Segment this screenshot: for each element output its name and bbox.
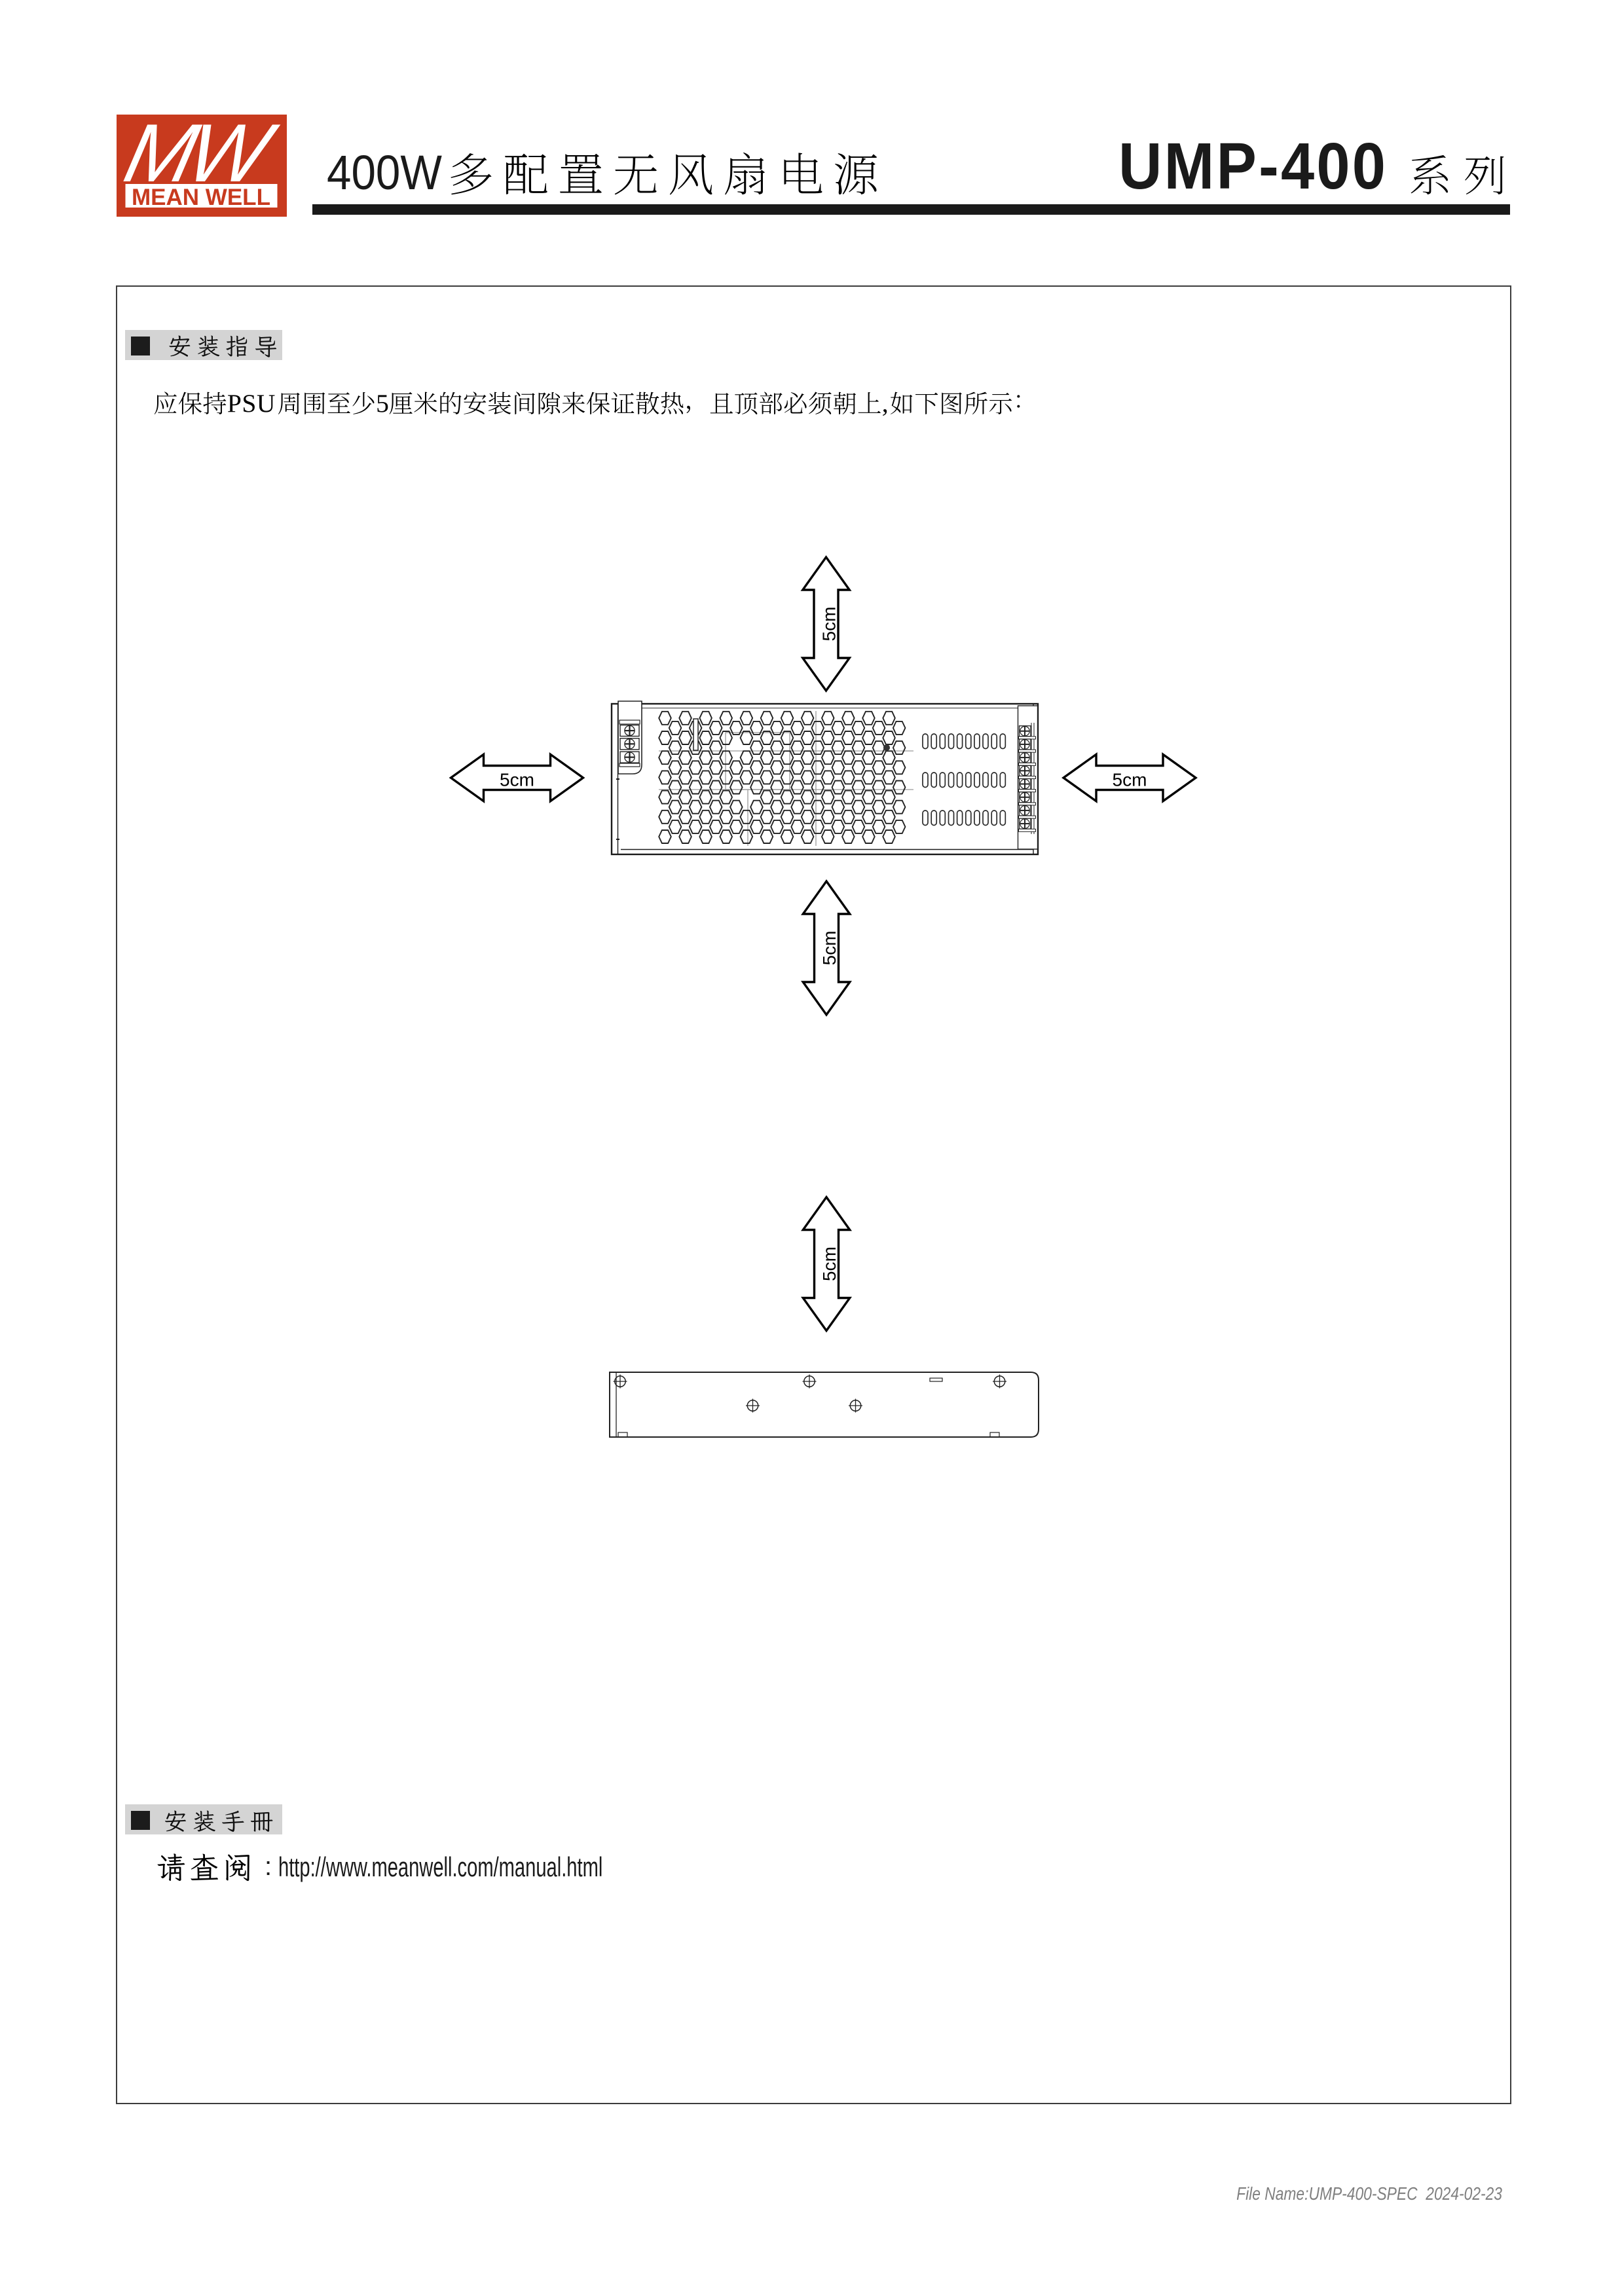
svg-text:http://www.meanwell.com/manual: http://www.meanwell.com/manual.html (278, 1852, 602, 1882)
svg-text::: : (265, 1852, 272, 1881)
